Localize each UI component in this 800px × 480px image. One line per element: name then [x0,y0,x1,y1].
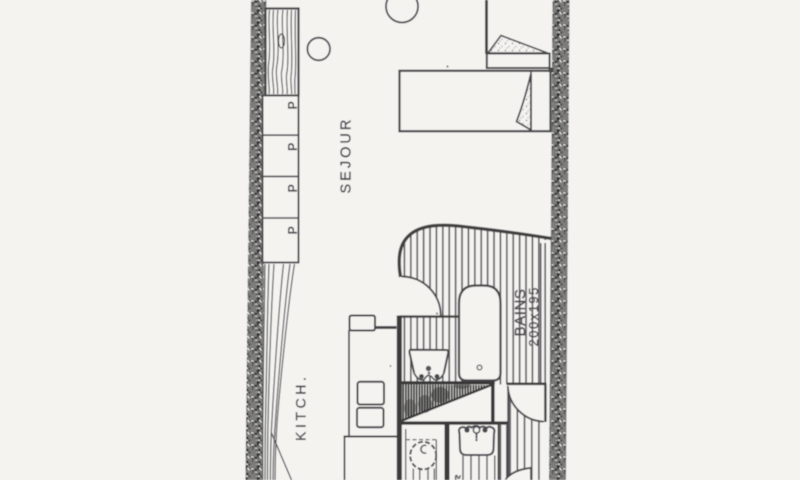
svg-text:P: P [286,101,300,109]
svg-text:P: P [286,184,300,192]
svg-text:P: P [286,143,300,151]
svg-text:KITCH.: KITCH. [293,374,309,442]
svg-text:200x195: 200x195 [526,286,541,346]
svg-text:SEJOUR: SEJOUR [339,117,355,194]
svg-text:P: P [286,226,300,234]
